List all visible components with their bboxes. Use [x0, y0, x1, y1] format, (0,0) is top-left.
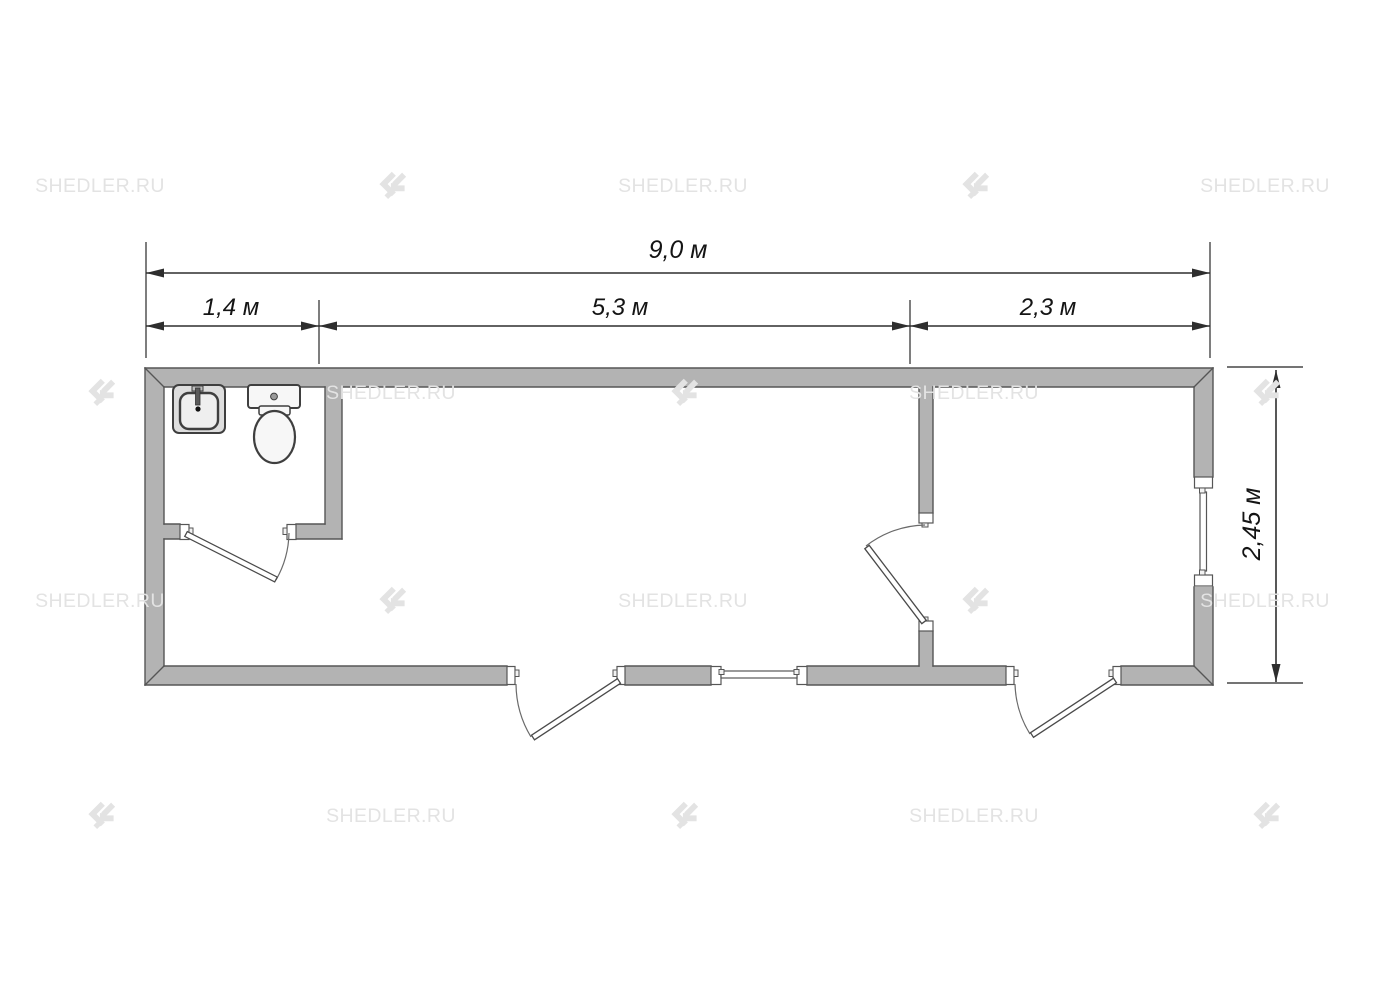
- shedler-logo-icon: [967, 174, 988, 197]
- floorplan-svg: 9,0 м 1,4 м 5,3 м 2,3 м 2,45 м SHEDLER.R…: [0, 0, 1400, 991]
- shedler-logo-icon: [1258, 804, 1279, 827]
- shedler-logo-icon: [967, 589, 988, 612]
- watermark-text: SHEDLER.RU: [35, 590, 165, 612]
- wall-bathroom: [296, 387, 342, 539]
- watermark-text: SHEDLER.RU: [1200, 590, 1330, 612]
- watermark-text: SHEDLER.RU: [618, 175, 748, 197]
- toilet-icon: [248, 385, 300, 463]
- watermark-text: SHEDLER.RU: [326, 382, 456, 404]
- walls: [145, 368, 1213, 685]
- wall-bottom-pier-2: [807, 666, 1006, 685]
- dim-right-room-width: 2,3 м: [1019, 294, 1076, 321]
- watermark-text: SHEDLER.RU: [1200, 175, 1330, 197]
- window-bottom: [711, 667, 807, 685]
- watermark-text: SHEDLER.RU: [326, 805, 456, 827]
- dim-overall-width: 9,0 м: [649, 236, 708, 264]
- right-exterior-door: [1015, 678, 1117, 737]
- dim-bathroom-width: 1,4 м: [203, 294, 259, 321]
- shedler-logo-icon: [93, 804, 114, 827]
- watermark-text: SHEDLER.RU: [909, 382, 1039, 404]
- bathroom-door: [185, 532, 289, 582]
- wall-partition-top: [919, 387, 933, 513]
- shedler-logo-icon: [384, 589, 405, 612]
- shedler-logo-icon: [384, 174, 405, 197]
- wall-partition-bottom: [919, 631, 933, 666]
- shedler-logo-icon: [93, 381, 114, 404]
- main-exterior-door: [516, 679, 621, 740]
- dim-main-room-width: 5,3 м: [592, 294, 648, 321]
- watermark-text: SHEDLER.RU: [35, 175, 165, 197]
- wall-bottom-pier-1: [625, 666, 711, 685]
- shedler-logo-icon: [676, 381, 697, 404]
- partition-door: [865, 525, 926, 624]
- sink-icon: [173, 385, 225, 433]
- dim-overall-depth: 2,45 м: [1238, 488, 1266, 562]
- shedler-logo-icon: [676, 804, 697, 827]
- doors: [185, 525, 1117, 740]
- watermark-layer: SHEDLER.RUSHEDLER.RUSHEDLER.RUSHEDLER.RU…: [35, 174, 1330, 827]
- window-right: [1195, 477, 1213, 586]
- floorplan-canvas: 9,0 м 1,4 м 5,3 м 2,3 м 2,45 м SHEDLER.R…: [0, 0, 1400, 991]
- watermark-text: SHEDLER.RU: [909, 805, 1039, 827]
- watermark-text: SHEDLER.RU: [618, 590, 748, 612]
- dimension-lines: 9,0 м 1,4 м 5,3 м 2,3 м 2,45 м: [146, 236, 1303, 683]
